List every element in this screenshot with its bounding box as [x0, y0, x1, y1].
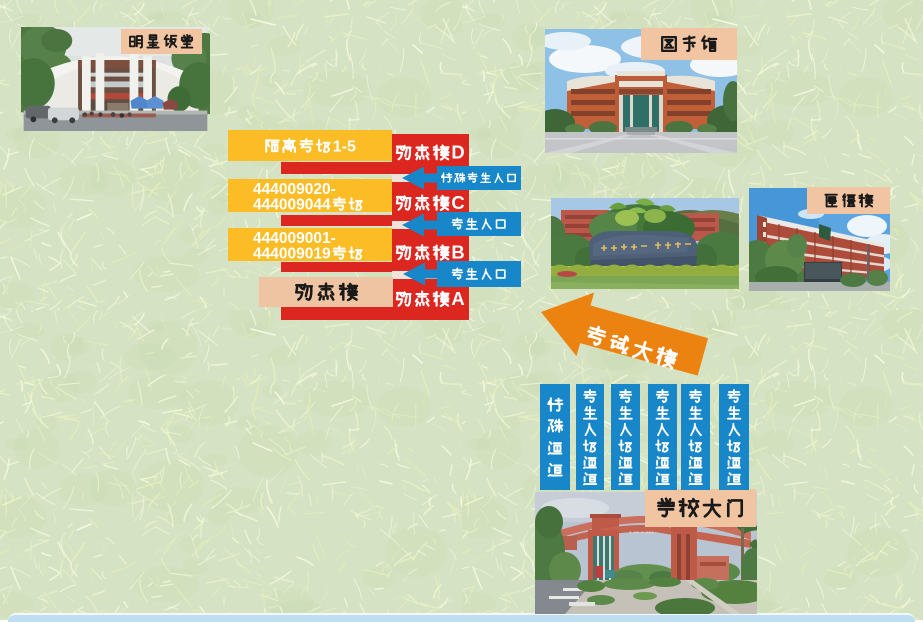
svg-text:444009001-: 444009001- [253, 230, 336, 247]
svg-text:444009020-: 444009020- [253, 181, 336, 198]
svg-text:B: B [451, 242, 464, 263]
svg-text:444009019: 444009019 [253, 246, 331, 262]
svg-text:D: D [451, 141, 464, 162]
svg-text:C: C [451, 192, 464, 213]
svg-text:1-5: 1-5 [333, 138, 356, 155]
svg-text:444009044: 444009044 [253, 197, 331, 213]
svg-text:A: A [451, 288, 464, 309]
svg-text:* ** * ***: * ** * *** [629, 531, 654, 538]
